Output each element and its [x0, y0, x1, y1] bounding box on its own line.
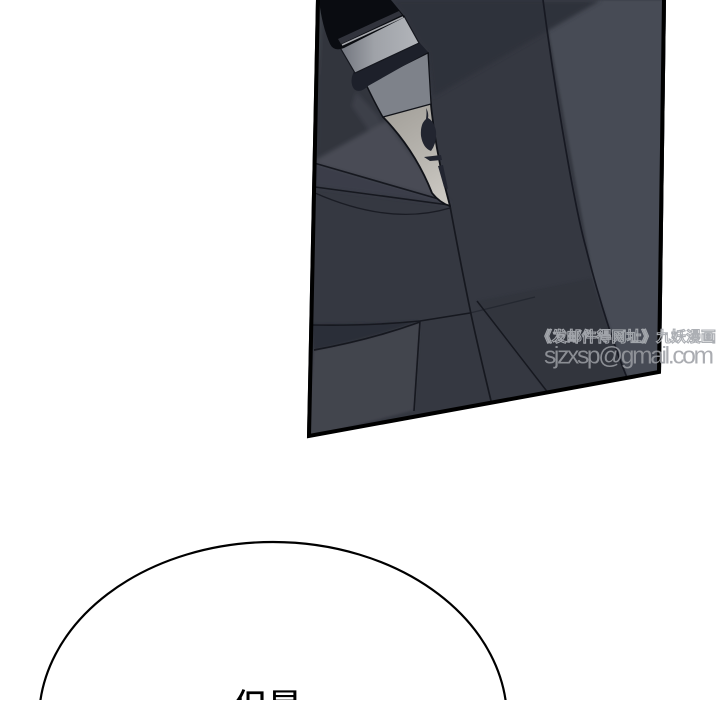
svg-text:sjzxsp@gmail.com: sjzxsp@gmail.com — [544, 343, 714, 370]
